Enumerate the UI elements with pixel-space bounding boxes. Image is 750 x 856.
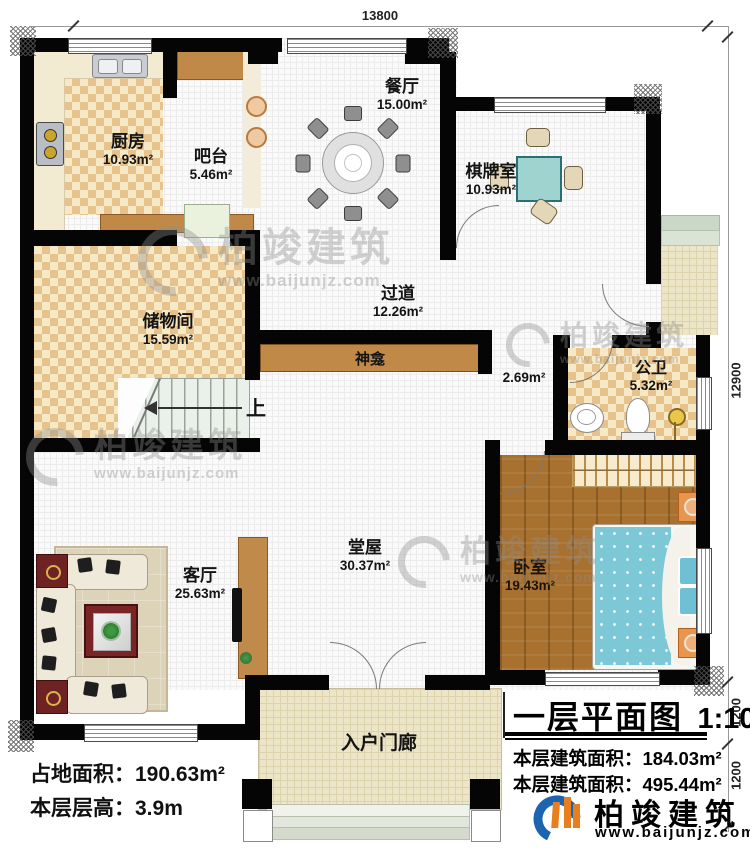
dimension-line-top	[30, 26, 728, 27]
column	[242, 779, 272, 809]
chess-table	[516, 156, 562, 202]
side-table	[36, 680, 68, 714]
room-label-living: 客厅25.63m²	[175, 566, 225, 601]
sofa-pillow	[41, 655, 56, 670]
stair-arrow-head	[144, 401, 157, 415]
sofa-pillow	[77, 557, 93, 573]
toilet	[626, 398, 650, 434]
burner	[44, 129, 57, 142]
sink-basin	[98, 59, 118, 74]
land-area-value: 190.63m²	[135, 763, 225, 786]
wall	[245, 230, 260, 380]
room-label-bedroom: 卧室19.43m²	[505, 558, 555, 593]
hatch-mark	[10, 26, 36, 56]
table-medallion	[46, 691, 61, 706]
dimension-label-top: 13800	[340, 8, 420, 23]
shower-pipe	[674, 422, 676, 440]
room-label-shrine-area: 2.69m²	[503, 370, 546, 386]
coffee-table	[84, 604, 138, 658]
stair-arrow	[158, 407, 242, 409]
room-label-bathroom: 公卫5.32m²	[630, 360, 673, 394]
hatch-mark	[8, 720, 34, 752]
room-label-hall: 堂屋30.37m²	[340, 538, 390, 573]
wall	[425, 675, 490, 690]
room-label-kitchen: 厨房10.93m²	[103, 132, 153, 167]
window	[494, 97, 606, 113]
wall	[545, 440, 710, 455]
window	[696, 548, 712, 634]
exterior-mask	[661, 97, 710, 215]
window	[696, 377, 712, 430]
wall-pillar	[248, 38, 278, 64]
shower-head	[668, 408, 686, 426]
title-rule	[505, 738, 707, 740]
stairs-up-label: 上	[246, 398, 266, 421]
floor-plan: 神龛	[0, 0, 750, 856]
bed-mattress	[595, 527, 671, 665]
window	[545, 672, 660, 686]
brand-url: www.baijunjz.com	[595, 824, 750, 841]
room-label-dining: 餐厅15.00m²	[377, 77, 427, 112]
room-label-storage: 储物间15.59m²	[143, 312, 194, 347]
bathroom-sink	[570, 403, 604, 433]
sink-bowl	[577, 409, 596, 425]
sofa-pillow	[41, 597, 58, 614]
wall	[485, 440, 500, 685]
scale-label: 1:100	[697, 703, 750, 735]
land-area-stat: 占地面积：190.63m²	[30, 758, 225, 788]
terrace-step	[661, 230, 720, 246]
wall	[20, 230, 177, 246]
wall	[163, 38, 177, 98]
exterior-mask	[457, 38, 710, 97]
floor-height-label: 本层层高：	[30, 797, 135, 820]
shrine-shelf: 神龛	[260, 344, 480, 372]
wall	[696, 335, 710, 377]
floor-height-value: 3.9m	[135, 797, 183, 820]
shrine-label: 神龛	[355, 348, 385, 369]
wall	[20, 38, 34, 740]
wall	[696, 428, 710, 548]
wall	[20, 438, 260, 452]
hatch-mark	[634, 84, 662, 114]
title-rule	[505, 732, 707, 736]
bar-stool	[246, 96, 267, 117]
room-label-chess: 棋牌室10.93m²	[466, 162, 517, 197]
brand-logo-icon	[530, 788, 588, 846]
floor-height-stat: 本层层高：3.9m	[30, 792, 183, 822]
bar-stool	[246, 127, 267, 148]
window	[68, 38, 152, 54]
sofa-pillow	[41, 627, 57, 643]
wall	[553, 335, 568, 453]
land-area-label: 占地面积：	[30, 763, 135, 786]
window	[84, 724, 198, 742]
wall	[245, 675, 329, 690]
wall	[485, 670, 545, 685]
plant-icon	[103, 623, 119, 639]
hatch-mark	[428, 28, 458, 58]
column-base	[243, 810, 273, 842]
sofa-pillow	[83, 681, 99, 697]
wall	[456, 97, 494, 111]
dining-chair	[344, 206, 362, 221]
burner	[44, 146, 57, 159]
wardrobe	[572, 452, 696, 487]
dining-table-center	[344, 154, 362, 172]
wall	[440, 52, 456, 260]
kitchen-sink	[92, 54, 148, 78]
floor-area-line-1: 本层建筑面积：184.03m²	[513, 745, 722, 771]
room-label-corridor: 过道12.26m²	[373, 284, 423, 319]
bar-lower-cabinet	[184, 204, 230, 238]
chess-chair	[564, 166, 583, 190]
dining-chair	[296, 155, 311, 173]
window	[287, 38, 407, 54]
wall	[612, 335, 661, 348]
chess-chair	[526, 128, 550, 147]
table-medallion	[46, 565, 61, 580]
room-label-bar: 吧台5.46m²	[190, 147, 233, 182]
terrace-floor	[661, 244, 718, 335]
title-block: 一层平面图 1:100 本层建筑面积：184.03m² 本层建筑面积：495.4…	[388, 690, 738, 852]
sofa-pillow	[105, 559, 121, 575]
dining-chair	[344, 106, 362, 121]
dining-chair	[396, 155, 411, 173]
sofa-pillow	[111, 683, 127, 699]
wall	[658, 670, 696, 685]
side-table	[36, 554, 68, 588]
plant-icon	[240, 652, 252, 664]
wall	[478, 330, 492, 374]
sofa	[66, 676, 148, 714]
stove	[36, 122, 64, 166]
wall	[196, 724, 260, 740]
sink-basin	[122, 59, 142, 74]
wall	[646, 111, 661, 284]
wall	[256, 330, 482, 344]
tv	[232, 588, 242, 642]
dimension-label-right: 12900	[729, 341, 744, 421]
